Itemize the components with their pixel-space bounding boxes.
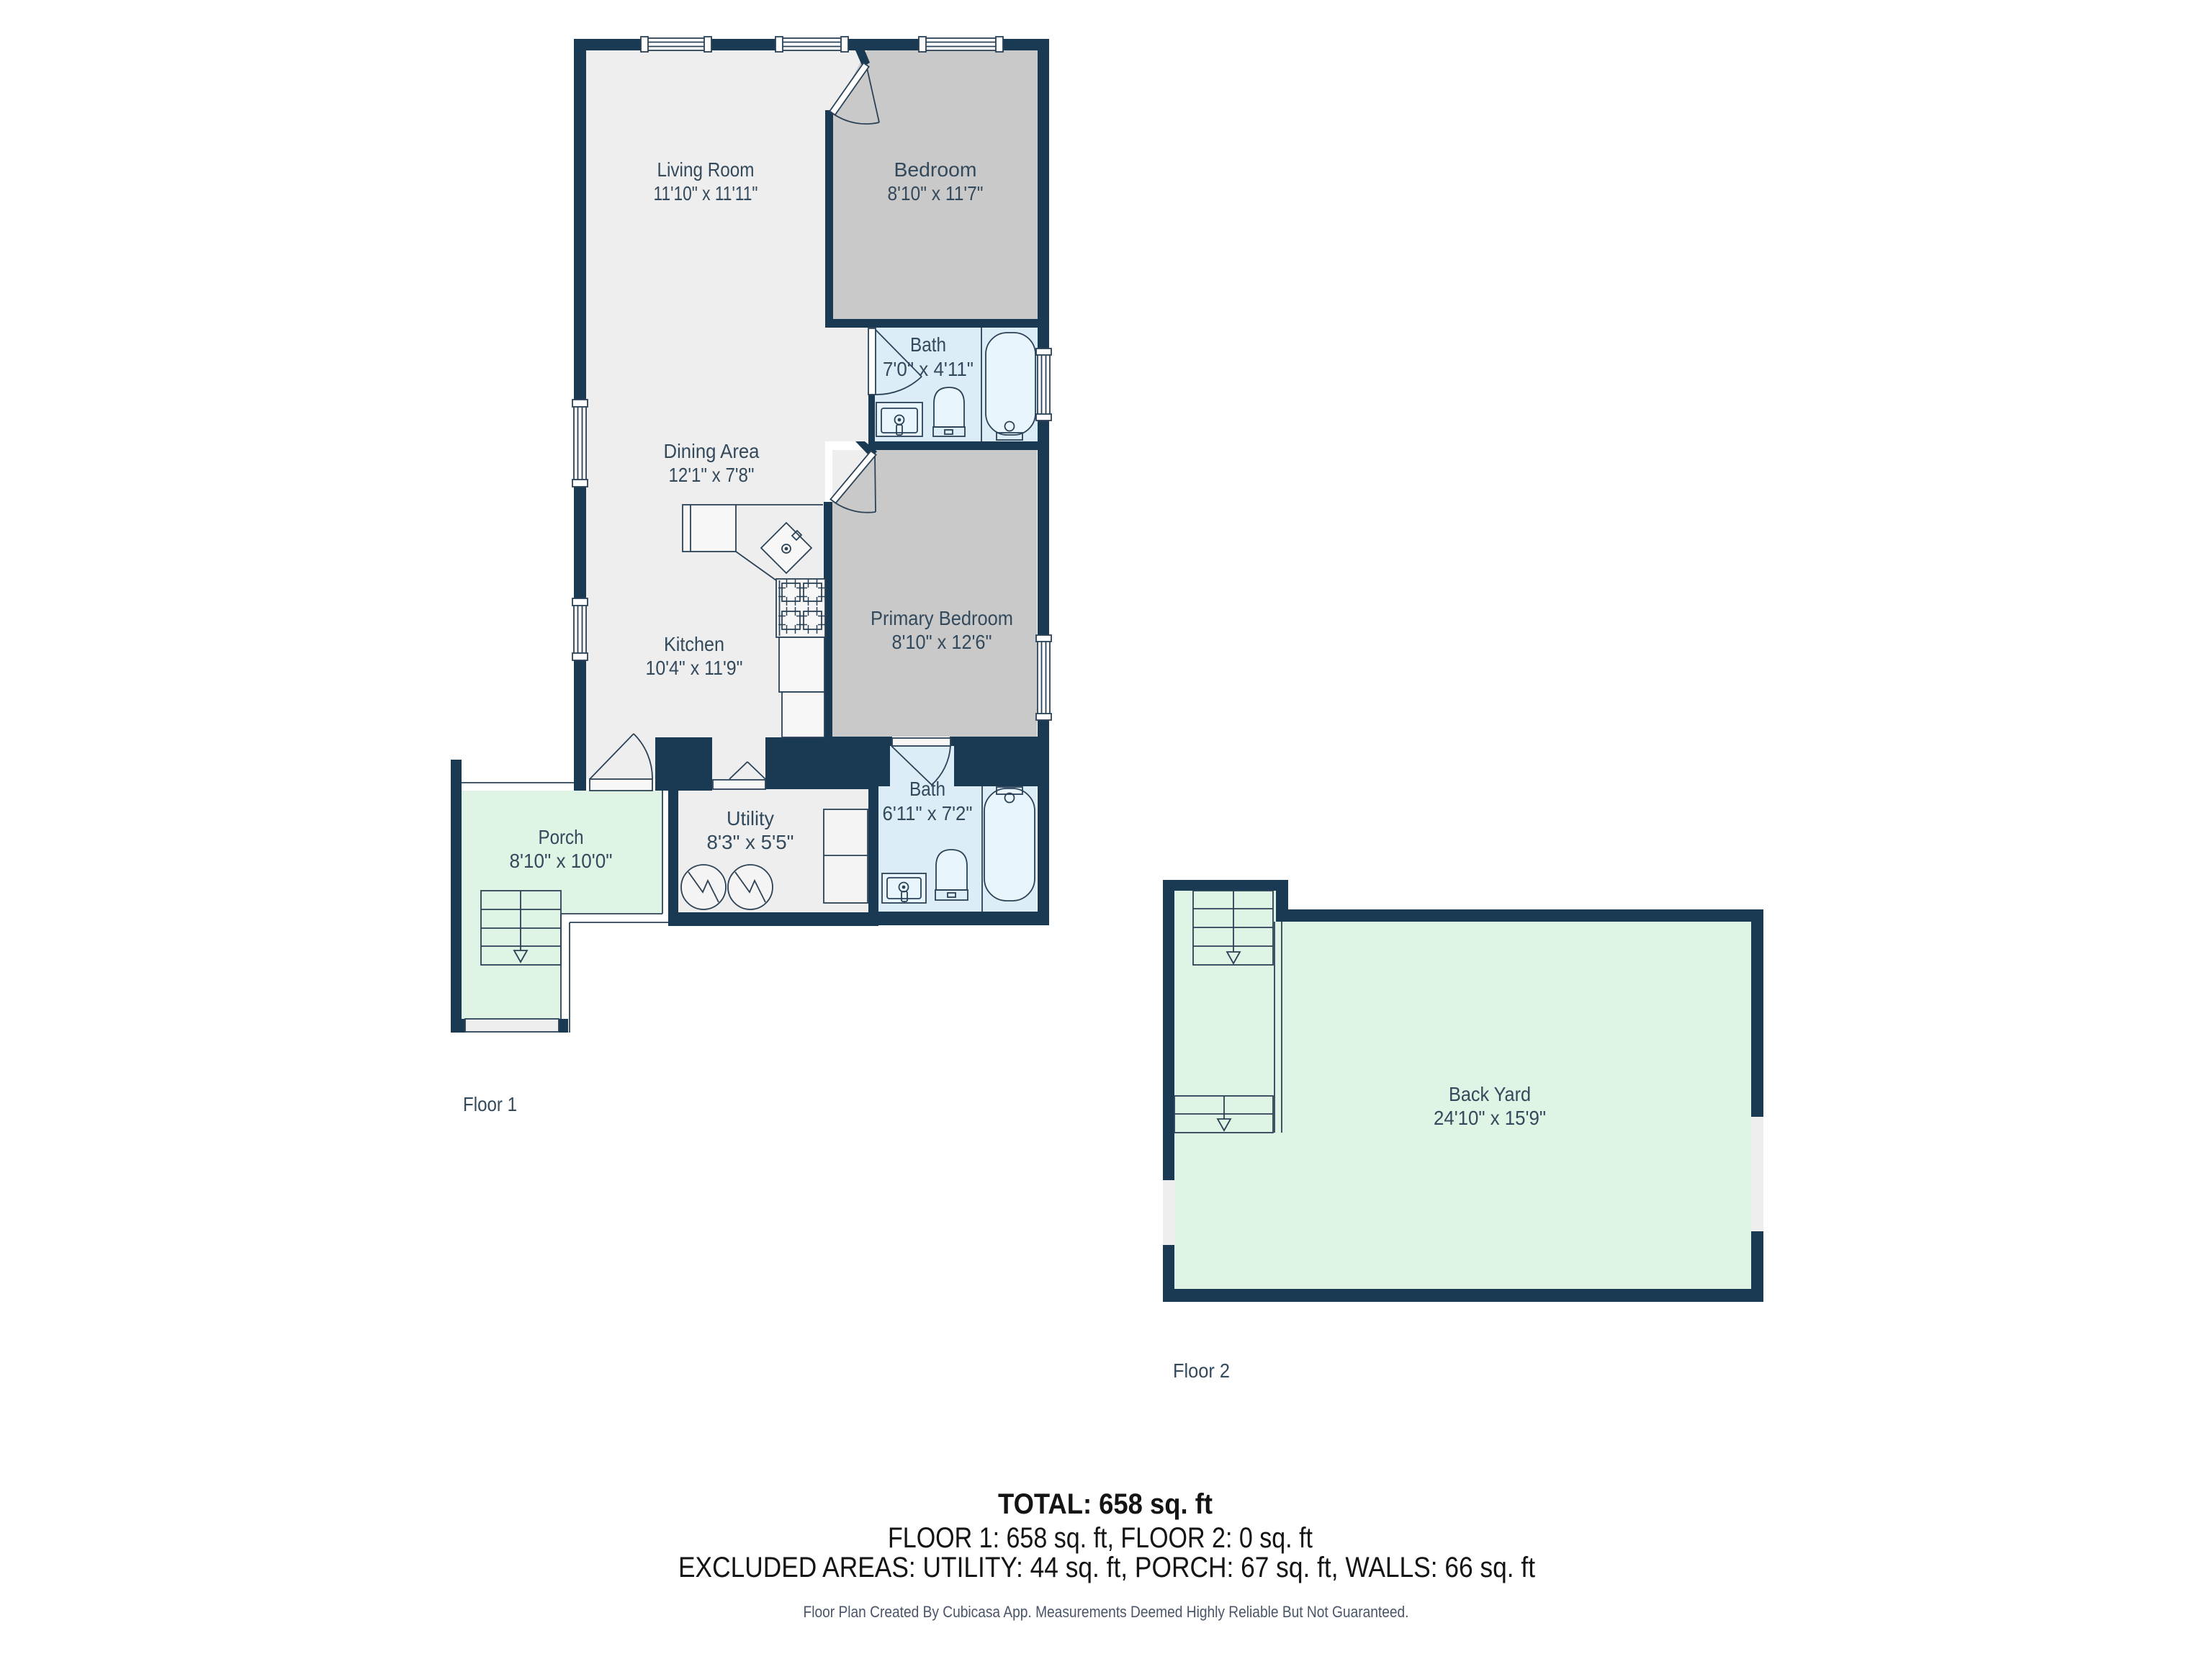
svg-text:8'3" x 5'5": 8'3" x 5'5" xyxy=(707,831,794,853)
svg-text:8'10" x 12'6": 8'10" x 12'6" xyxy=(892,631,992,653)
svg-text:Dining Area: Dining Area xyxy=(664,440,760,462)
svg-text:8'10" x 10'0": 8'10" x 10'0" xyxy=(510,850,613,872)
svg-text:Bedroom: Bedroom xyxy=(894,158,977,181)
svg-text:7'0" x 4'11": 7'0" x 4'11" xyxy=(883,358,974,380)
svg-text:Bath: Bath xyxy=(909,778,945,800)
svg-text:10'4" x 11'9": 10'4" x 11'9" xyxy=(646,657,743,679)
svg-text:Primary Bedroom: Primary Bedroom xyxy=(871,607,1013,629)
svg-text:12'1" x 7'8": 12'1" x 7'8" xyxy=(669,464,755,486)
svg-text:Floor 1: Floor 1 xyxy=(463,1093,517,1115)
svg-text:Floor 2: Floor 2 xyxy=(1173,1359,1230,1382)
svg-text:Utility: Utility xyxy=(727,807,774,829)
svg-text:8'10" x 11'7": 8'10" x 11'7" xyxy=(888,182,984,204)
svg-text:Floor Plan Created By Cubicasa: Floor Plan Created By Cubicasa App. Meas… xyxy=(804,1603,1409,1621)
svg-text:Back Yard: Back Yard xyxy=(1449,1083,1531,1105)
svg-text:Kitchen: Kitchen xyxy=(664,633,724,655)
svg-text:11'10" x 11'11": 11'10" x 11'11" xyxy=(654,182,758,204)
svg-text:Porch: Porch xyxy=(539,826,584,848)
svg-text:6'11" x 7'2": 6'11" x 7'2" xyxy=(883,802,973,824)
svg-text:Bath: Bath xyxy=(910,333,946,356)
svg-text:Living Room: Living Room xyxy=(657,158,755,181)
svg-text:EXCLUDED AREAS: UTILITY: 44 sq: EXCLUDED AREAS: UTILITY: 44 sq. ft, PORC… xyxy=(678,1552,1535,1583)
svg-text:24'10" x 15'9": 24'10" x 15'9" xyxy=(1434,1107,1546,1129)
svg-text:FLOOR 1: 658 sq. ft, FLOOR 2:: FLOOR 1: 658 sq. ft, FLOOR 2: 0 sq. ft xyxy=(888,1522,1313,1554)
svg-text:TOTAL: 658 sq. ft: TOTAL: 658 sq. ft xyxy=(998,1488,1213,1520)
